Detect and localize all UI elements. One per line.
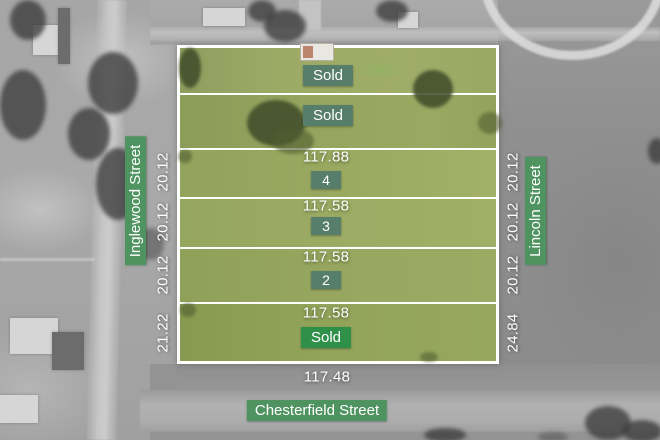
tree bbox=[0, 70, 46, 140]
grass-marking bbox=[352, 60, 406, 80]
tree bbox=[424, 428, 466, 440]
tree bbox=[179, 48, 201, 88]
bottom-frontage-measurement: 117.48 bbox=[304, 369, 351, 386]
road-verge bbox=[177, 364, 660, 392]
lot-4-number-badge: 4 bbox=[311, 171, 341, 189]
tree bbox=[264, 10, 306, 42]
tree bbox=[420, 352, 438, 362]
aerial-subdivision-plan: Sold Sold 117.88 4 117.58 3 117.58 2 117… bbox=[0, 0, 660, 440]
street-label-lincoln: Lincoln Street bbox=[525, 157, 546, 265]
lot-2-number-badge: 2 bbox=[311, 271, 341, 289]
paddock-line bbox=[0, 258, 95, 261]
tree bbox=[10, 0, 46, 40]
tree bbox=[376, 0, 408, 22]
lot-3-right-depth: 20.12 bbox=[505, 202, 522, 241]
tree bbox=[178, 150, 192, 163]
street-label-inglewood: Inglewood Street bbox=[125, 137, 146, 266]
house-roof bbox=[52, 332, 84, 370]
sold-badge: Sold bbox=[303, 65, 353, 86]
tree bbox=[648, 138, 660, 164]
lot-4-right-depth: 20.12 bbox=[505, 152, 522, 191]
sold-badge: Sold bbox=[301, 327, 351, 348]
sold-badge: Sold bbox=[303, 105, 353, 126]
tree bbox=[413, 70, 453, 108]
lot-2-frontage: 117.58 bbox=[303, 249, 350, 266]
tree bbox=[180, 303, 196, 317]
tree bbox=[68, 108, 110, 160]
lot-3-frontage: 117.58 bbox=[303, 198, 350, 215]
tree bbox=[88, 52, 138, 114]
lot-4-left-depth: 20.12 bbox=[155, 152, 172, 191]
tree bbox=[622, 420, 660, 440]
lot-bottom-frontage: 117.58 bbox=[303, 305, 350, 322]
chesterfield-street-road bbox=[140, 390, 660, 432]
house-roof bbox=[10, 318, 58, 354]
lot-4-frontage: 117.88 bbox=[303, 149, 350, 166]
lot-2-left-depth: 20.12 bbox=[155, 255, 172, 294]
shed bbox=[300, 43, 334, 61]
lot-3-number-badge: 3 bbox=[311, 217, 341, 235]
lot-3-left-depth: 20.12 bbox=[155, 202, 172, 241]
tree bbox=[478, 112, 502, 134]
lot-2-right-depth: 20.12 bbox=[505, 255, 522, 294]
lot-bottom-left-depth: 21.22 bbox=[155, 313, 172, 352]
lot-bottom-right-depth: 24.84 bbox=[505, 313, 522, 352]
shed-roof-detail bbox=[303, 46, 313, 58]
house-roof bbox=[203, 8, 245, 26]
house-roof bbox=[58, 8, 70, 64]
street-label-chesterfield: Chesterfield Street bbox=[247, 400, 387, 421]
tree bbox=[538, 432, 568, 440]
house-roof bbox=[0, 395, 38, 423]
